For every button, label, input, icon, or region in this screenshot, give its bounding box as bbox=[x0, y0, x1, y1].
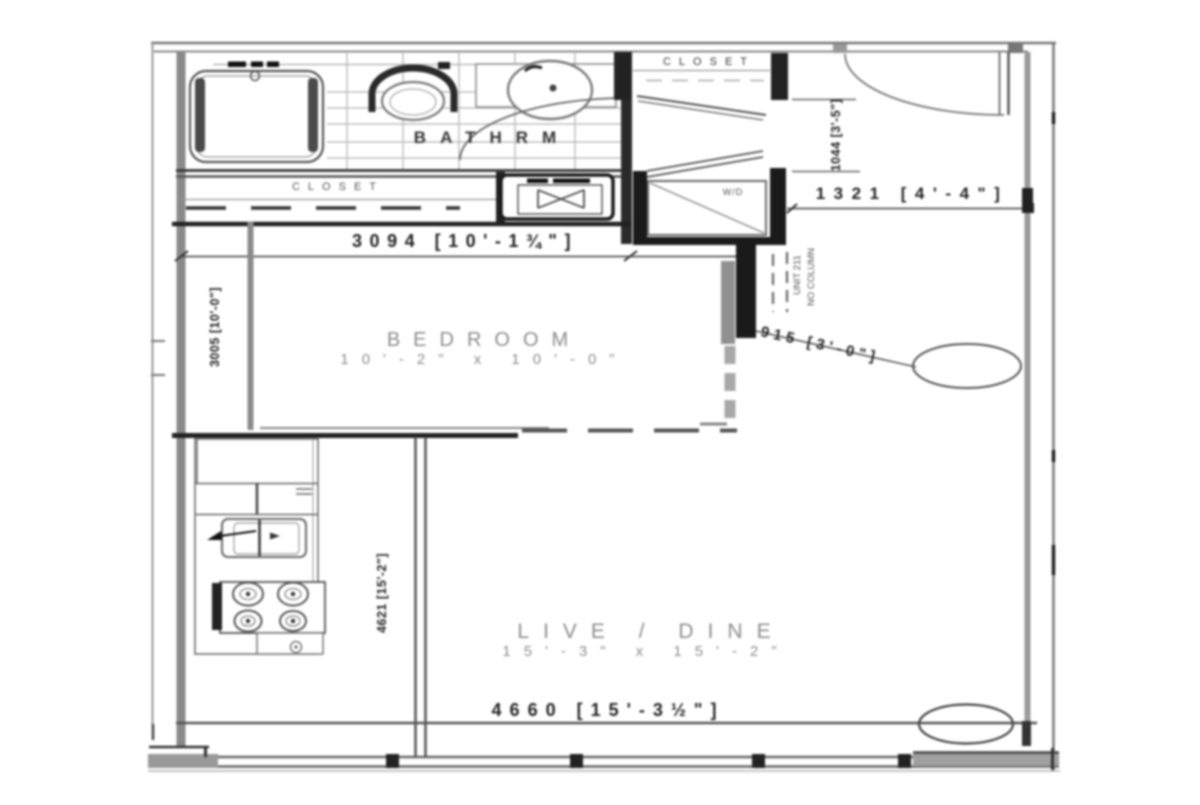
svg-text:3005 [10'-0"]: 3005 [10'-0"] bbox=[208, 287, 222, 367]
svg-text:BEDROOM: BEDROOM bbox=[387, 329, 581, 351]
svg-text:UNIT 211: UNIT 211 bbox=[792, 255, 803, 295]
svg-text:LIVE / DINE: LIVE / DINE bbox=[517, 620, 784, 643]
svg-text:1321 [4'-4"]: 1321 [4'-4"] bbox=[816, 184, 1009, 203]
svg-text:CLOSET: CLOSET bbox=[663, 56, 755, 68]
svg-text:W/D: W/D bbox=[723, 187, 744, 197]
svg-text:CLOSET: CLOSET bbox=[292, 181, 384, 193]
svg-text:4660 [15'-3½"]: 4660 [15'-3½"] bbox=[492, 700, 725, 720]
svg-text:1044 [3'-5"]: 1044 [3'-5"] bbox=[829, 99, 843, 172]
svg-text:4621 [15'-2"]: 4621 [15'-2"] bbox=[375, 553, 389, 633]
svg-text:3094 [10'-1¾"]: 3094 [10'-1¾"] bbox=[352, 231, 578, 251]
svg-text:15'-3" x 15'-2": 15'-3" x 15'-2" bbox=[502, 643, 789, 660]
svg-text:10'-2" x 10'-0": 10'-2" x 10'-0" bbox=[340, 351, 627, 368]
svg-text:NO COLUMN: NO COLUMN bbox=[806, 248, 817, 306]
svg-text:BATHRM: BATHRM bbox=[414, 128, 570, 147]
